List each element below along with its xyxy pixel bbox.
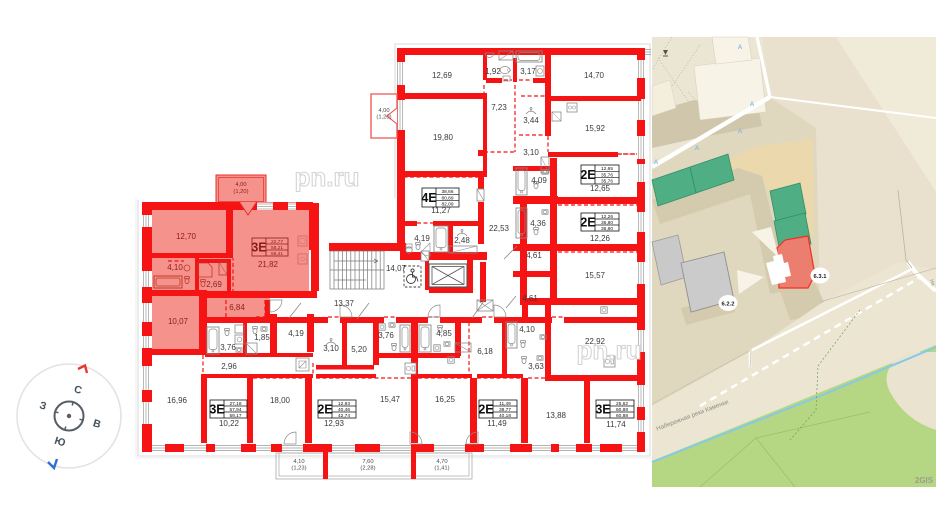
svg-text:11,49: 11,49: [487, 419, 507, 428]
svg-text:4,36: 4,36: [530, 219, 546, 228]
svg-text:11,27: 11,27: [431, 206, 451, 215]
svg-text:А: А: [654, 160, 659, 166]
svg-text:pn.ru: pn.ru: [295, 162, 360, 192]
svg-text:3,10: 3,10: [523, 148, 539, 157]
svg-text:3,76: 3,76: [220, 343, 236, 352]
svg-text:15,92: 15,92: [585, 124, 606, 133]
svg-text:2Е: 2Е: [580, 168, 595, 182]
svg-text:2,69: 2,69: [206, 280, 222, 289]
svg-text:40,46: 40,46: [338, 407, 350, 413]
svg-text:(1,41): (1,41): [434, 466, 449, 472]
svg-text:3,76: 3,76: [378, 331, 394, 340]
svg-text:12,93: 12,93: [338, 401, 350, 407]
svg-text:6.2.2: 6.2.2: [722, 302, 735, 308]
svg-text:12,65: 12,65: [601, 166, 613, 172]
svg-text:6.3.1: 6.3.1: [814, 274, 828, 280]
svg-text:3,63: 3,63: [528, 362, 544, 371]
svg-text:3Е: 3Е: [595, 402, 610, 416]
svg-text:14,07: 14,07: [386, 264, 407, 273]
svg-text:4,19: 4,19: [414, 234, 430, 243]
svg-text:12,93: 12,93: [324, 419, 345, 428]
svg-text:14,70: 14,70: [584, 71, 605, 80]
svg-text:1,85: 1,85: [254, 333, 270, 342]
svg-text:4,61: 4,61: [526, 251, 542, 260]
svg-text:12,69: 12,69: [432, 71, 453, 80]
svg-text:15,57: 15,57: [585, 271, 606, 280]
svg-text:5,20: 5,20: [351, 345, 367, 354]
svg-text:21,82: 21,82: [258, 260, 279, 269]
svg-text:59,17: 59,17: [229, 413, 241, 419]
svg-text:80,89: 80,89: [441, 195, 453, 201]
svg-text:22,53: 22,53: [489, 224, 510, 233]
svg-text:19,80: 19,80: [433, 133, 454, 142]
svg-text:2Е: 2Е: [317, 402, 332, 416]
svg-text:1,92: 1,92: [485, 67, 501, 76]
svg-text:13,37: 13,37: [334, 299, 355, 308]
svg-text:4,19: 4,19: [288, 329, 304, 338]
svg-text:3,17: 3,17: [520, 67, 536, 76]
svg-text:38,77: 38,77: [499, 407, 511, 413]
svg-text:3,10: 3,10: [323, 344, 339, 353]
svg-text:А: А: [695, 146, 700, 152]
svg-text:2Е: 2Е: [580, 215, 595, 229]
svg-text:60,88: 60,88: [616, 413, 628, 419]
svg-text:3Е: 3Е: [209, 402, 224, 416]
svg-text:3,44: 3,44: [523, 116, 539, 125]
svg-text:6,18: 6,18: [477, 347, 493, 356]
svg-text:35,76: 35,76: [601, 172, 613, 178]
svg-text:2,48: 2,48: [454, 236, 470, 245]
svg-text:7,23: 7,23: [491, 103, 507, 112]
svg-text:10,07: 10,07: [168, 317, 189, 326]
svg-text:40,18: 40,18: [499, 413, 511, 419]
svg-text:4,70: 4,70: [436, 459, 447, 465]
svg-text:А: А: [738, 45, 743, 51]
svg-text:16,25: 16,25: [435, 395, 456, 404]
svg-text:4,10: 4,10: [167, 263, 183, 272]
svg-text:60,88: 60,88: [616, 407, 628, 413]
svg-text:3Е: 3Е: [251, 240, 266, 254]
svg-text:13,88: 13,88: [546, 411, 567, 420]
svg-text:(1,20): (1,20): [376, 115, 391, 121]
svg-text:15,47: 15,47: [380, 395, 401, 404]
svg-text:4,09: 4,09: [531, 176, 547, 185]
svg-text:11,49: 11,49: [499, 401, 511, 407]
svg-text:57,94: 57,94: [229, 407, 241, 413]
svg-text:4Е: 4Е: [421, 191, 436, 205]
svg-text:6,84: 6,84: [229, 303, 245, 312]
svg-text:2Е: 2Е: [478, 402, 493, 416]
svg-text:27,18: 27,18: [229, 401, 241, 407]
svg-text:18,00: 18,00: [270, 396, 291, 405]
svg-text:4,00: 4,00: [378, 108, 389, 114]
svg-text:10,22: 10,22: [219, 419, 240, 428]
svg-text:16,96: 16,96: [167, 396, 188, 405]
svg-text:36,80: 36,80: [601, 226, 613, 232]
svg-text:2GIS: 2GIS: [915, 476, 934, 485]
svg-text:11,74: 11,74: [606, 420, 626, 429]
svg-text:4,85: 4,85: [436, 329, 452, 338]
svg-text:59,41: 59,41: [271, 251, 283, 257]
svg-text:22,77: 22,77: [271, 239, 283, 245]
svg-text:36,80: 36,80: [601, 220, 613, 226]
svg-text:4,10: 4,10: [293, 459, 304, 465]
svg-text:pn.ru: pn.ru: [577, 335, 642, 365]
svg-text:25,62: 25,62: [616, 401, 628, 407]
svg-text:4,61: 4,61: [522, 294, 538, 303]
svg-text:А: А: [750, 102, 755, 108]
svg-text:12,26: 12,26: [601, 214, 613, 220]
svg-text:7,60: 7,60: [362, 459, 373, 465]
svg-text:12,26: 12,26: [590, 234, 611, 243]
svg-text:(1,23): (1,23): [291, 466, 306, 472]
svg-text:4,10: 4,10: [519, 325, 535, 334]
svg-text:А: А: [738, 129, 743, 135]
svg-text:4,00: 4,00: [235, 182, 246, 188]
svg-text:38,66: 38,66: [441, 189, 453, 195]
svg-text:(1,20): (1,20): [233, 189, 248, 195]
svg-text:2,96: 2,96: [221, 362, 237, 371]
svg-text:42,74: 42,74: [338, 413, 350, 419]
svg-text:58,21: 58,21: [271, 245, 283, 251]
svg-text:12,65: 12,65: [590, 184, 611, 193]
svg-text:12,70: 12,70: [176, 232, 197, 241]
svg-text:(2,28): (2,28): [360, 466, 375, 472]
